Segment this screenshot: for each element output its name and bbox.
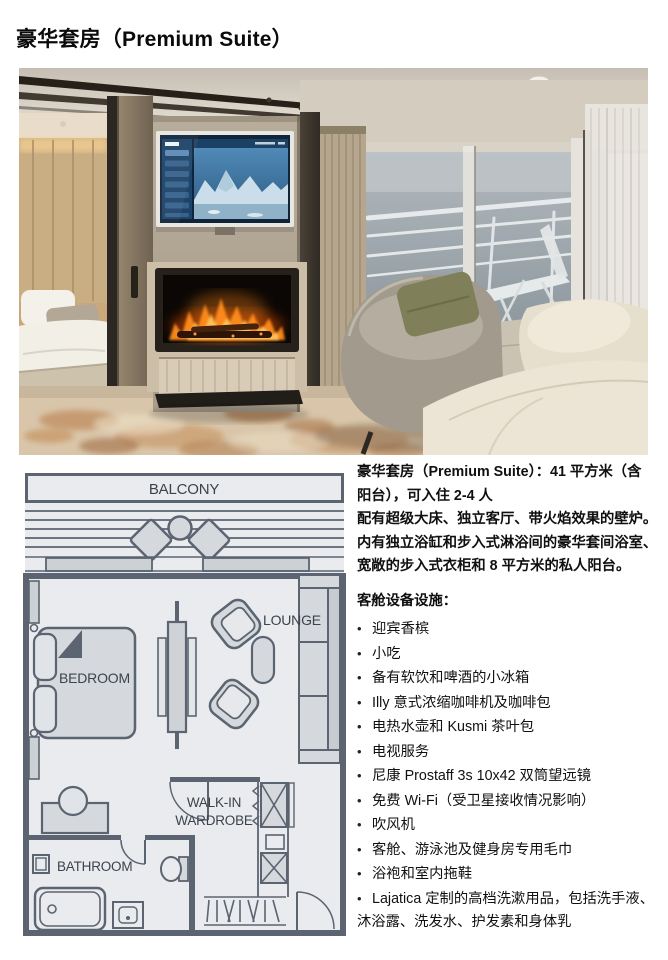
walkin-label-line2: WARDROBE (175, 813, 253, 828)
vanity (113, 902, 143, 928)
balcony-label: BALCONY (149, 481, 219, 498)
photo-media-wall (147, 116, 309, 423)
nightstand (29, 581, 39, 623)
pillow (34, 686, 56, 732)
sliding-glass-door (203, 558, 309, 571)
suite-photo-illustration (19, 68, 648, 455)
bullet-icon: • (357, 740, 372, 764)
amenity-item: •电热水壶和 Kusmi 茶叶包 (357, 715, 659, 740)
toilet (161, 857, 181, 881)
amenity-item: •免费 Wi-Fi（受卫星接收情况影响） (357, 789, 659, 814)
bullet-icon: • (357, 887, 372, 911)
amenity-item: •吹风机 (357, 813, 659, 838)
bathroom-label: BATHROOM (57, 859, 132, 874)
balcony-table (169, 517, 192, 540)
amenity-item: •小吃 (357, 642, 659, 667)
suite-info: 豪华套房（Premium Suite）：41 平方米（含 阳台），可入住 2-4… (357, 461, 659, 935)
bullet-icon: • (357, 764, 372, 788)
floorplan: BALCONY (23, 471, 346, 936)
floorplan-svg: BALCONY (23, 471, 346, 936)
photo-fireplace (147, 262, 309, 423)
suite-photo (19, 68, 648, 455)
side-table (252, 637, 274, 683)
door-handle (131, 266, 138, 298)
stool (59, 787, 87, 815)
page-title: 豪华套房（Premium Suite） (16, 23, 293, 53)
bullet-icon: • (357, 715, 372, 739)
amenities-list: •迎宾香槟 •小吃 •备有软饮和啤酒的小冰箱 •Illy 意式浓缩咖啡机及咖啡包… (357, 617, 659, 935)
description-line: 宽敞的步入式衣柜和 8 平方米的私人阳台。 (357, 555, 659, 579)
photo-tv (156, 131, 294, 235)
bullet-icon: • (357, 691, 372, 715)
lounge-label: LOUNGE (263, 612, 321, 628)
amenity-item: •客舱、游泳池及健身房专用毛巾 (357, 838, 659, 863)
description-line: 配有超级大床、独立客厅、带火焰效果的壁炉。 (357, 508, 659, 532)
description-line: 豪华套房（Premium Suite）：41 平方米（含 (357, 461, 659, 485)
amenity-item: •备有软饮和啤酒的小冰箱 (357, 666, 659, 691)
brochure-page: 豪华套房（Premium Suite） (0, 0, 668, 960)
balcony-area: BALCONY (25, 475, 344, 576)
walkin-label-line1: WALK-IN (187, 795, 241, 810)
pillow (34, 634, 56, 680)
bullet-icon: • (357, 617, 372, 641)
tv-fireplace-wall (168, 622, 186, 732)
bedroom-label: BEDROOM (59, 670, 130, 686)
description-line: 内有独立浴缸和步入式淋浴间的豪华套间浴室、 (357, 532, 659, 556)
bullet-icon: • (357, 789, 372, 813)
amenity-item: •Lajatica 定制的高档洗漱用品，包括洗手液、沐浴露、洗发水、护发素和身体… (357, 887, 659, 935)
wall-lamp (31, 625, 38, 632)
bullet-icon: • (357, 813, 372, 837)
amenity-item: •浴袍和室内拖鞋 (357, 862, 659, 887)
bullet-icon: • (357, 642, 372, 666)
amenity-item: •Illy 意式浓缩咖啡机及咖啡包 (357, 691, 659, 716)
description-line: 阳台），可入住 2-4 人 (357, 485, 659, 509)
bullet-icon: • (357, 666, 372, 690)
amenity-item: •迎宾香槟 (357, 617, 659, 642)
amenity-item: •尼康 Prostaff 3s 10x42 双筒望远镜 (357, 764, 659, 789)
bullet-icon: • (357, 838, 372, 862)
amenity-item: •电视服务 (357, 740, 659, 765)
nightstand (29, 737, 39, 779)
amenities-heading: 客舱设备设施： (357, 590, 659, 614)
bullet-icon: • (357, 862, 372, 886)
suite-description: 豪华套房（Premium Suite）：41 平方米（含 阳台），可入住 2-4… (357, 461, 659, 579)
sofa (299, 575, 340, 763)
sliding-glass-door (46, 558, 152, 571)
